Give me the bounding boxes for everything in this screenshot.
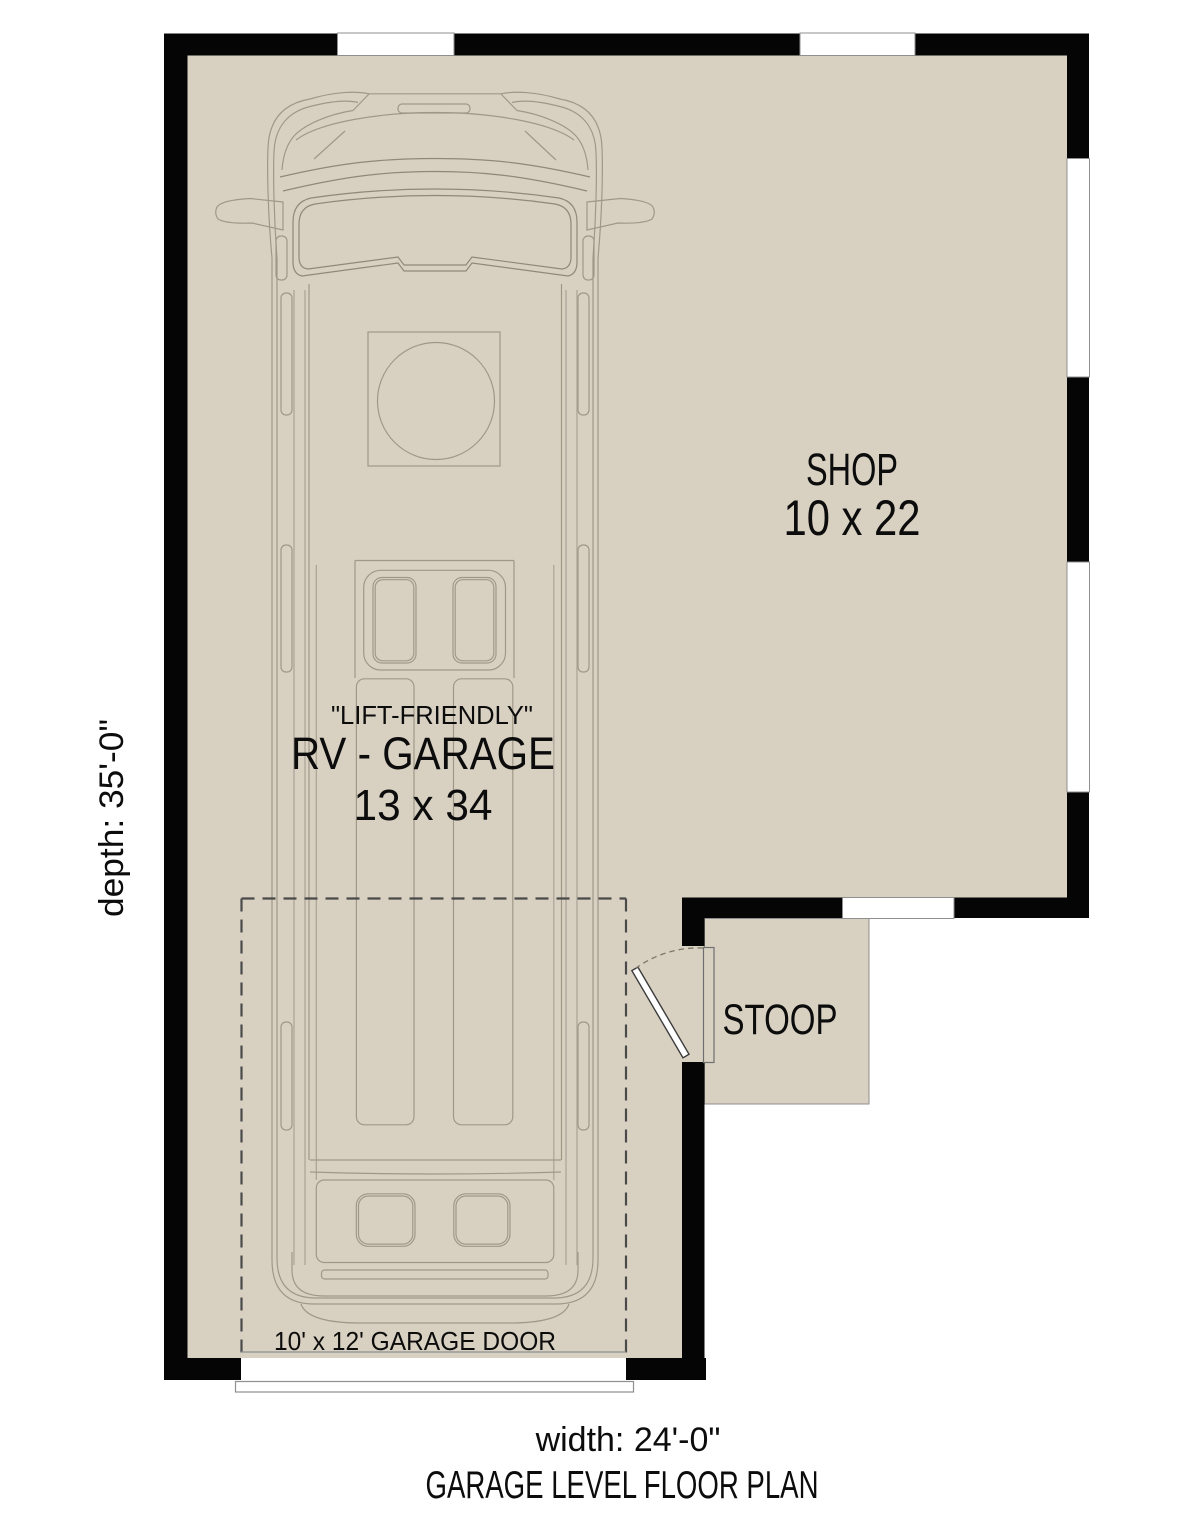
svg-text:STOOP: STOOP	[723, 996, 838, 1044]
svg-text:13 x 34: 13 x 34	[354, 781, 493, 830]
svg-text:SHOP: SHOP	[806, 444, 898, 495]
svg-text:10' x 12' GARAGE DOOR: 10' x 12' GARAGE DOOR	[274, 1326, 556, 1356]
svg-text:depth: 35'-0": depth: 35'-0"	[93, 719, 131, 917]
svg-text:GARAGE LEVEL FLOOR PLAN: GARAGE LEVEL FLOOR PLAN	[426, 1464, 819, 1507]
svg-text:10 x 22: 10 x 22	[784, 490, 921, 546]
svg-text:RV - GARAGE: RV - GARAGE	[291, 728, 555, 779]
svg-text:width: 24'-0": width: 24'-0"	[535, 1421, 721, 1459]
svg-text:"LIFT-FRIENDLY": "LIFT-FRIENDLY"	[331, 700, 533, 730]
